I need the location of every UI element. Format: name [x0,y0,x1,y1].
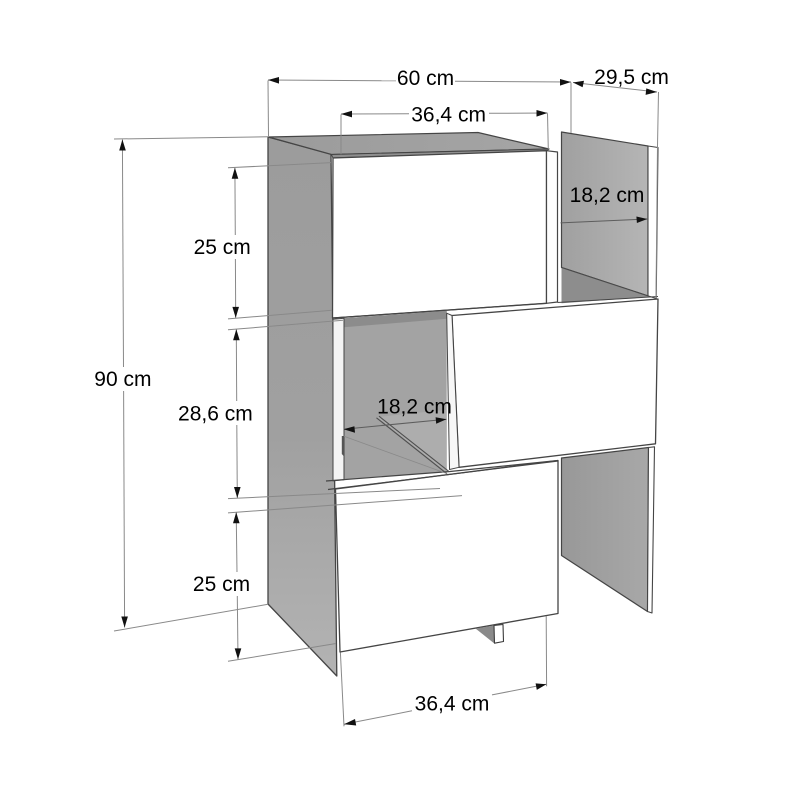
svg-text:60 cm: 60 cm [397,67,454,90]
svg-text:18,2 cm: 18,2 cm [377,396,452,419]
svg-text:36,4 cm: 36,4 cm [411,104,486,127]
svg-text:29,5 cm: 29,5 cm [594,66,669,89]
svg-text:28,6 cm: 28,6 cm [178,403,253,426]
svg-text:25 cm: 25 cm [194,236,251,259]
svg-text:36,4 cm: 36,4 cm [415,693,490,716]
svg-text:90 cm: 90 cm [94,368,151,391]
svg-text:25 cm: 25 cm [193,573,250,596]
svg-text:18,2 cm: 18,2 cm [570,184,645,207]
